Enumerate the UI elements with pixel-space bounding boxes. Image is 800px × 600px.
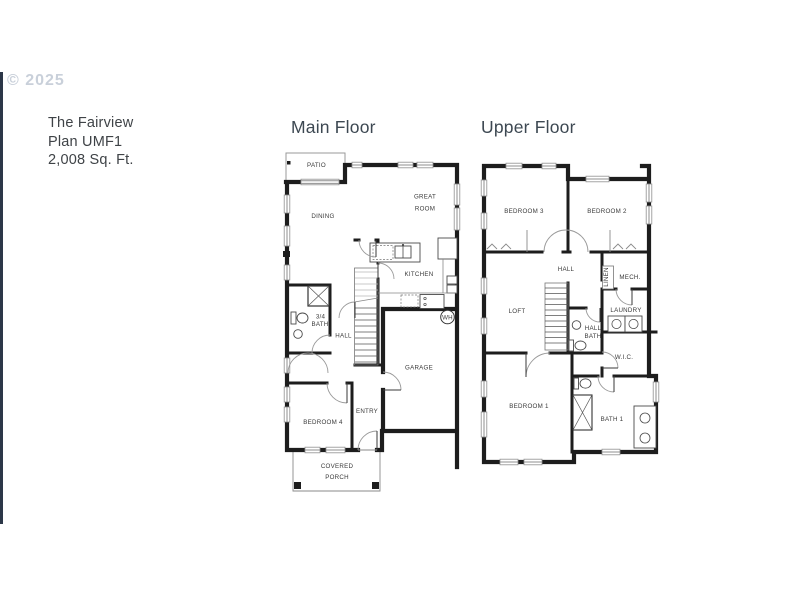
porch-post-right [372, 482, 379, 489]
main-stairs [355, 268, 379, 365]
label-bedroom4: BEDROOM 4 [303, 419, 343, 426]
label-bath-1: 3/4 [316, 314, 326, 321]
label-bedroom1: BEDROOM 1 [509, 403, 549, 410]
label-mech: MECH. [619, 274, 640, 281]
label-patio: PATIO [307, 162, 326, 169]
closet-marks [487, 244, 636, 249]
label-great-room-2: ROOM [415, 206, 435, 213]
label-hall-bath-2: BATH [584, 333, 601, 340]
toilet-tank [569, 340, 574, 351]
toilet-tank [291, 312, 296, 324]
hall-bath-fixtures [569, 321, 586, 351]
stove [420, 295, 444, 309]
vanity [634, 406, 656, 448]
toilet [575, 341, 586, 350]
label-garage: GARAGE [405, 365, 433, 372]
label-water-heater: WH [442, 314, 453, 321]
label-bedroom2: BEDROOM 2 [587, 208, 627, 215]
main-floor-title: Main Floor [291, 117, 376, 138]
main-floor-plan: PATIO DINING GREAT ROOM KITCHEN WH 3/4 B… [283, 150, 473, 500]
label-porch-1: COVERED [321, 463, 354, 470]
dishwasher [401, 295, 418, 307]
patio-post [287, 161, 291, 165]
label-entry: ENTRY [356, 408, 378, 415]
fridge [438, 238, 457, 259]
upper-stairs [545, 283, 568, 350]
floorplan-photo: © 2025 The Fairview Plan UMF1 2,008 Sq. … [0, 0, 800, 600]
label-porch-2: PORCH [325, 474, 349, 481]
plan-name: The Fairview [48, 114, 134, 133]
upper-floor-title: Upper Floor [481, 117, 576, 138]
porch-post-left [294, 482, 301, 489]
label-bath-2: BATH [311, 321, 328, 328]
upper-floor-plan: BEDROOM 3 BEDROOM 2 HALL LINEN MECH. LOF… [478, 150, 663, 485]
sink [294, 330, 303, 339]
main-bath-fixtures [291, 286, 329, 338]
toilet-tank [574, 378, 579, 389]
label-dining: DINING [311, 213, 334, 220]
label-bedroom3: BEDROOM 3 [504, 208, 544, 215]
photo-left-edge [0, 72, 3, 524]
label-hall-bath-1: HALL [585, 325, 602, 332]
label-great-room-1: GREAT [414, 194, 436, 201]
label-loft: LOFT [509, 308, 526, 315]
label-laundry: LAUNDRY [610, 307, 641, 314]
label-bath1: BATH 1 [601, 416, 624, 423]
label-linen: LINEN [603, 267, 610, 286]
label-hall: HALL [335, 333, 352, 340]
plan-sqft: 2,008 Sq. Ft. [48, 151, 134, 170]
copyright-watermark: © 2025 [7, 72, 65, 90]
toilet [297, 313, 308, 323]
washer-dryer [608, 316, 642, 332]
sink [572, 321, 581, 330]
label-kitchen: KITCHEN [405, 271, 434, 278]
label-wic: W.I.C. [615, 354, 633, 361]
plan-info: The Fairview Plan UMF1 2,008 Sq. Ft. [48, 114, 134, 170]
toilet [580, 379, 591, 388]
label-hall: HALL [558, 266, 575, 273]
plan-number: Plan UMF1 [48, 133, 134, 152]
porch-outline [293, 452, 380, 491]
